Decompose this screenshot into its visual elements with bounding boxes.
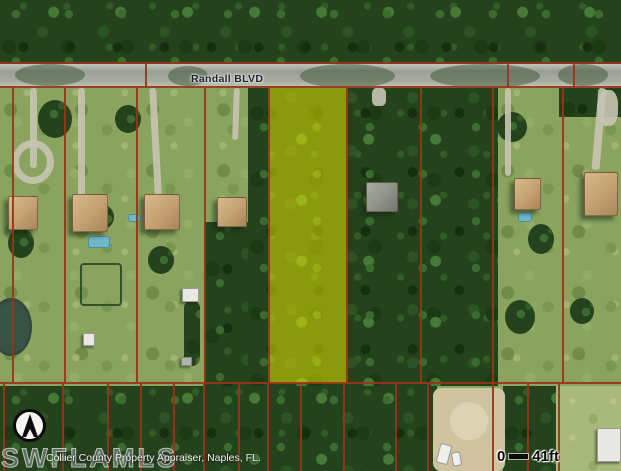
parcel-boundary-line: [268, 88, 270, 383]
parcel-boundary-line: [12, 88, 14, 383]
parcel-boundary-line: [573, 62, 575, 88]
aerial-parcel-map[interactable]: Randall BLVD SWFLAMLS Collier County Pro…: [0, 0, 621, 471]
road-name-label: Randall BLVD: [191, 73, 263, 85]
tree-clump: [38, 100, 72, 138]
parcel-boundary-line: [420, 88, 422, 383]
pond: [0, 298, 32, 356]
pool: [128, 214, 141, 222]
tree-clump: [497, 112, 527, 142]
tree-shadow: [15, 64, 85, 86]
parcel-boundary-line: [343, 384, 345, 471]
scale-distance-label: 41ft: [532, 448, 559, 465]
tree-clump: [570, 298, 594, 324]
parcel-boundary-line: [492, 88, 494, 383]
outbuilding: [181, 357, 192, 366]
driveway: [505, 88, 511, 176]
house: [144, 194, 180, 230]
driveway-pad: [598, 90, 618, 126]
north-arrow-notch: [26, 429, 34, 437]
parcel-boundary-line: [0, 86, 621, 88]
outbuilding: [182, 288, 199, 302]
parcel-boundary-line: [507, 62, 509, 88]
driveway: [372, 88, 386, 106]
parcel-boundary-line: [267, 384, 269, 471]
fenced-paddock: [80, 263, 122, 306]
house: [584, 172, 618, 216]
parcel-boundary-line: [492, 384, 494, 471]
outbuilding: [83, 333, 95, 346]
tree-shadow: [430, 64, 540, 88]
driveway: [78, 88, 85, 196]
scale-bar-segment: [509, 454, 528, 459]
tree-shadow: [300, 64, 395, 88]
parcel-boundary-line: [562, 88, 564, 383]
parcel-boundary-line: [395, 384, 397, 471]
house: [514, 178, 541, 210]
tree-clump: [528, 224, 554, 254]
driveway: [232, 88, 240, 140]
parcel-boundary-line: [64, 88, 66, 383]
pool: [88, 236, 110, 248]
driveway: [149, 88, 162, 196]
attribution-text: Collier County Property Appraiser, Naple…: [46, 452, 261, 464]
parcel-boundary-line: [0, 62, 621, 64]
parcel-boundary-line: [300, 384, 302, 471]
outbuilding: [597, 428, 621, 462]
compass-icon: [13, 409, 46, 442]
house: [366, 182, 398, 212]
house: [217, 197, 247, 227]
pool: [518, 212, 532, 222]
tree-clump: [148, 246, 174, 274]
highlighted-parcel: [268, 88, 347, 383]
scale-bar: 0 41ft: [497, 448, 559, 465]
scale-zero-label: 0: [497, 448, 505, 465]
parcel-boundary-line: [346, 88, 348, 383]
forest-north: [0, 0, 621, 66]
parcel-boundary-line: [427, 384, 429, 471]
parcel-boundary-line: [145, 62, 147, 88]
parcel-boundary-line: [204, 88, 206, 383]
house: [72, 194, 108, 232]
circular-driveway: [12, 140, 54, 184]
tree-shadow: [558, 64, 608, 86]
tree-clump: [505, 300, 535, 334]
parcel-boundary-line: [136, 88, 138, 383]
